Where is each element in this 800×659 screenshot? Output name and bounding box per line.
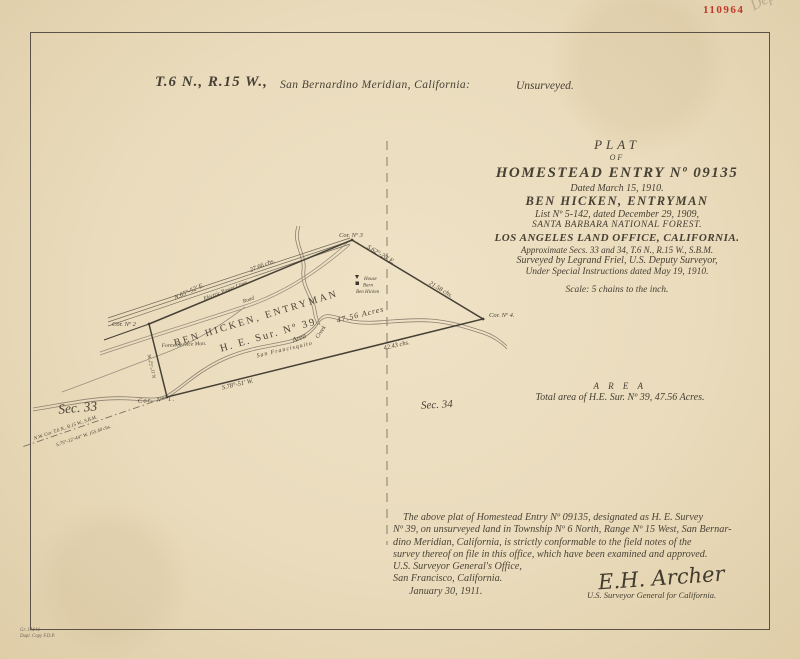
section-34-label: Sec. 34: [421, 398, 454, 412]
east-bearing-label: S.62°-20' E.: [366, 244, 397, 266]
duplicate-copy-note: Dupl. Copy F.D.P.: [20, 634, 55, 640]
area-total-text: Total area of H.E. Sur. Nº 39, 47.56 Acr…: [480, 392, 760, 403]
corner-1-label: Cor. Nº 1.: [138, 395, 176, 405]
building-symbols: [355, 275, 359, 285]
east-distance-label: 21.58 chs.: [428, 280, 455, 300]
forest-service-monument-label: Forest Service Mon.: [161, 341, 207, 349]
corner-2-label: Cor. Nº 2: [112, 321, 137, 328]
certification-line: Nº 39, on unsurveyed land in Township Nº…: [393, 524, 761, 536]
owner-label: Ben Hicken: [356, 290, 380, 295]
plat-sheet: 110964 Dep T.6 N., R.15 W., San Bernardi…: [0, 0, 800, 659]
road-lines: [62, 242, 350, 392]
section-33-label: Sec. 33: [58, 398, 98, 416]
certification-line: dino Meridian, California, is strictly c…: [393, 537, 761, 549]
creek-name-label: San Francisquito: [256, 341, 313, 360]
certification-line: survey thereof on file in this office, w…: [393, 549, 761, 561]
certification-line: The above plat of Homestead Entry Nº 091…: [393, 512, 761, 524]
barn-label: Barn: [363, 284, 374, 289]
corner-4-label: Cor. Nº 4.: [489, 312, 515, 319]
corner-3-label: Cor. Nº 3: [339, 232, 364, 239]
house-label: House: [363, 277, 378, 282]
area-value-label: 47.56 Acres: [336, 304, 386, 325]
corner-monuments: [148, 239, 485, 399]
area-heading: A R E A: [480, 381, 760, 391]
tie-corner-label: N.W. Cor. T.6 N., R.15 W., S.B.M.: [33, 415, 98, 442]
draftsman-corner-note: Gr. J.M.W. Dupl. Copy F.D.P.: [20, 628, 55, 639]
surveyor-general-title: U.S. Surveyor General for California.: [587, 590, 716, 600]
north-distance-label: 27.66 chs.: [249, 257, 277, 274]
